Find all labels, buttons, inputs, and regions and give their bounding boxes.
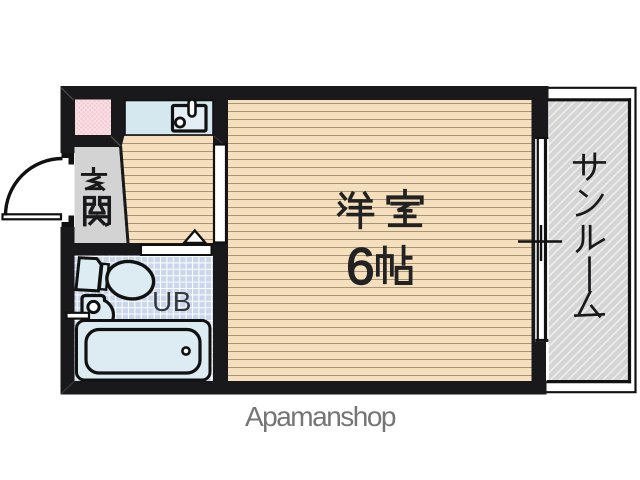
svg-text:UB: UB [152,286,192,317]
svg-text:Apamanshop: Apamanshop [245,401,396,432]
svg-text:6: 6 [346,237,375,295]
